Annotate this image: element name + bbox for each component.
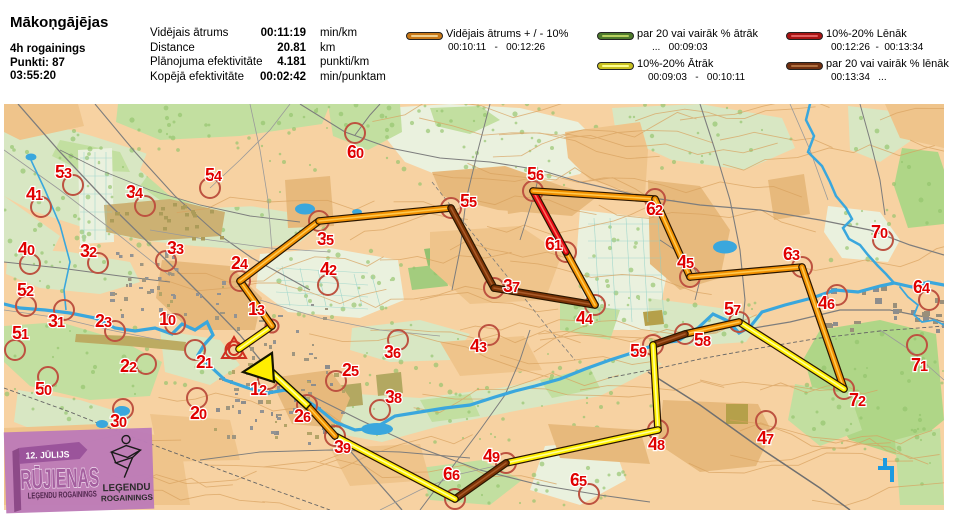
svg-text:12. JŪLIJS: 12. JŪLIJS [25,449,69,460]
svg-text:ROGAININGS: ROGAININGS [101,493,154,504]
